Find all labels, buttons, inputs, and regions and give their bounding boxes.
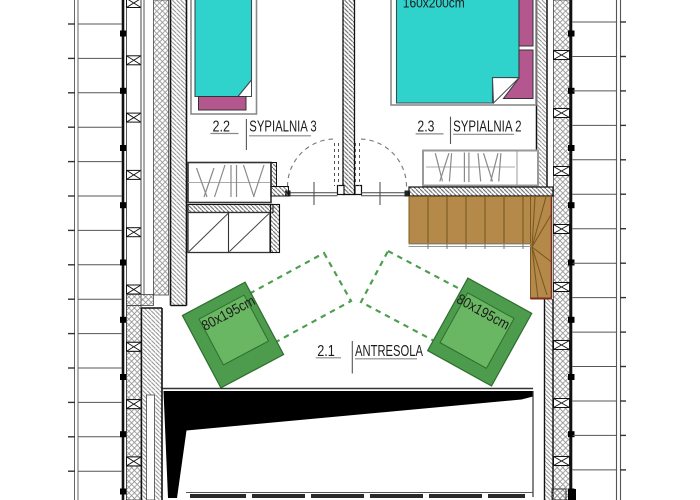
svg-text:SYPIALNIA 3: SYPIALNIA 3 [249, 119, 316, 136]
svg-text:2.3: 2.3 [417, 119, 434, 136]
svg-text:SYPIALNIA 2: SYPIALNIA 2 [453, 119, 521, 136]
svg-text:160x200cm: 160x200cm [403, 0, 465, 11]
svg-text:ANTRESOLA: ANTRESOLA [355, 343, 423, 360]
